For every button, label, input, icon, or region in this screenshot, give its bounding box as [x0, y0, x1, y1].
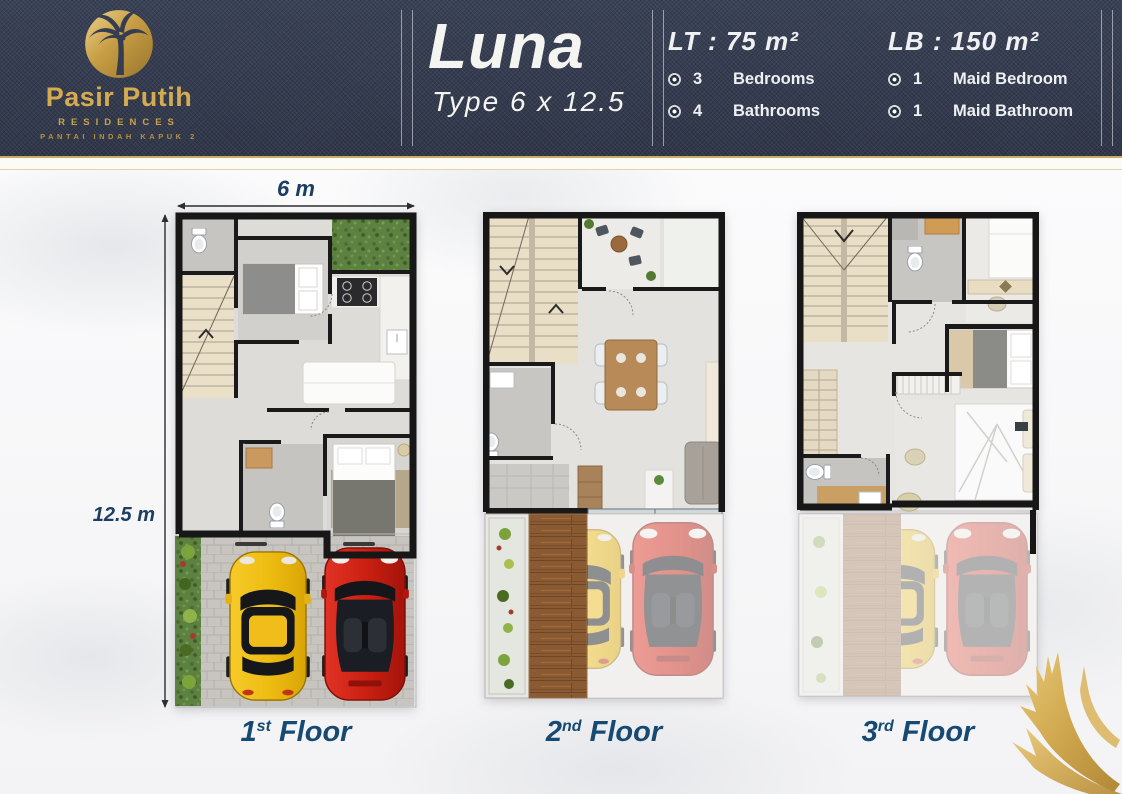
toilet-icon: [192, 228, 207, 253]
spec-column-land: LT : 75 m² 3 Bedrooms 4 Bathrooms: [668, 26, 873, 121]
unit-name: Luna: [428, 12, 643, 80]
spec-label: Maid Bedroom: [953, 70, 1068, 89]
palm-tree-icon: [83, 8, 155, 80]
bathroom: [484, 368, 552, 460]
closet: [892, 374, 960, 394]
toilet-icon: [908, 246, 923, 271]
wall-extension: [1030, 510, 1036, 554]
balcony-table: [611, 236, 627, 252]
spec-count: 1: [913, 70, 939, 89]
spec-label: Bathrooms: [733, 102, 820, 121]
toilet-icon: [270, 503, 285, 528]
stove-icon: [337, 278, 377, 306]
carport: [175, 534, 416, 707]
brand-residences: RESIDENCES: [18, 117, 220, 128]
floor-label-1: 1st Floor: [175, 716, 417, 749]
spec-item: 1 Maid Bedroom: [888, 70, 1103, 89]
width-dimension-label: 6 m: [175, 176, 417, 202]
lower-level-view: [485, 514, 723, 698]
header-divider: [652, 10, 653, 146]
floor-label-2: 2nd Floor: [483, 716, 725, 749]
depth-dimension-label: 12.5 m: [83, 504, 155, 527]
wood-deck: [529, 514, 587, 698]
yellow-car: [225, 552, 311, 700]
floor-plan-3: [797, 212, 1039, 710]
bottom-wall: [486, 508, 588, 514]
toilet-icon: [806, 465, 831, 480]
radio-bullet-icon: [888, 73, 901, 86]
cabinet: [578, 466, 602, 512]
stairs: [487, 216, 578, 364]
land-area: LT : 75 m²: [668, 26, 873, 57]
header-divider: [401, 10, 402, 146]
planter: [489, 518, 525, 694]
maid-bedroom: [238, 240, 328, 340]
spec-item: 3 Bedrooms: [668, 70, 873, 89]
radio-bullet-icon: [888, 105, 901, 118]
sliding-glass-door: [588, 509, 722, 514]
spec-count: 4: [693, 102, 719, 121]
balcony: [582, 216, 660, 289]
bedroom-2: [966, 216, 1035, 322]
spec-column-building: LB : 150 m² 1 Maid Bedroom 1 Maid Bathro…: [888, 26, 1103, 121]
radio-bullet-icon: [668, 73, 681, 86]
floor-plan-2: [483, 212, 725, 710]
radio-bullet-icon: [668, 105, 681, 118]
unit-type: Type 6 x 12.5: [432, 86, 643, 118]
bed: [989, 218, 1034, 278]
garden: [332, 216, 412, 272]
spec-item: 1 Maid Bathroom: [888, 102, 1103, 121]
bathroom: [243, 444, 323, 530]
brochure-page: Pasir Putih RESIDENCES PANTAI INDAH KAPU…: [0, 0, 1122, 794]
spec-item: 4 Bathrooms: [668, 102, 873, 121]
roof-terrace: [664, 216, 721, 289]
spec-count: 1: [913, 102, 939, 121]
floor-plan-1: [175, 212, 417, 710]
stairs: [801, 216, 888, 342]
header-divider: [1101, 10, 1102, 146]
spec-label: Bedrooms: [733, 70, 815, 89]
building-area: LB : 150 m²: [888, 26, 1103, 57]
dining-table: [605, 340, 657, 410]
gold-palm-frond-icon: [992, 644, 1122, 794]
brand-name: Pasir Putih: [18, 82, 220, 113]
dining-area: [595, 340, 667, 410]
stairs: [179, 276, 234, 398]
floor-plans-area: 6 m 12.5 m: [0, 170, 1122, 794]
brand-location: PANTAI INDAH KAPUK 2: [18, 132, 220, 141]
red-car: [321, 548, 409, 700]
maid-bathroom-3: [801, 458, 890, 510]
header-divider: [1112, 10, 1113, 146]
header-divider: [412, 10, 413, 146]
header-divider: [663, 10, 664, 146]
width-dimension-line: [175, 201, 417, 211]
kitchen: [487, 464, 673, 512]
bedroom: [327, 438, 414, 552]
bathroom: [892, 216, 962, 302]
header-gold-trim: [0, 156, 1122, 170]
brand-logo: Pasir Putih RESIDENCES PANTAI INDAH KAPU…: [18, 8, 220, 141]
unit-title-block: Luna Type 6 x 12.5: [428, 12, 643, 118]
header-bar: Pasir Putih RESIDENCES PANTAI INDAH KAPU…: [0, 0, 1122, 156]
spec-count: 3: [693, 70, 719, 89]
depth-dimension-line: [160, 212, 170, 710]
spec-label: Maid Bathroom: [953, 102, 1073, 121]
master-bedroom: [895, 400, 1036, 511]
